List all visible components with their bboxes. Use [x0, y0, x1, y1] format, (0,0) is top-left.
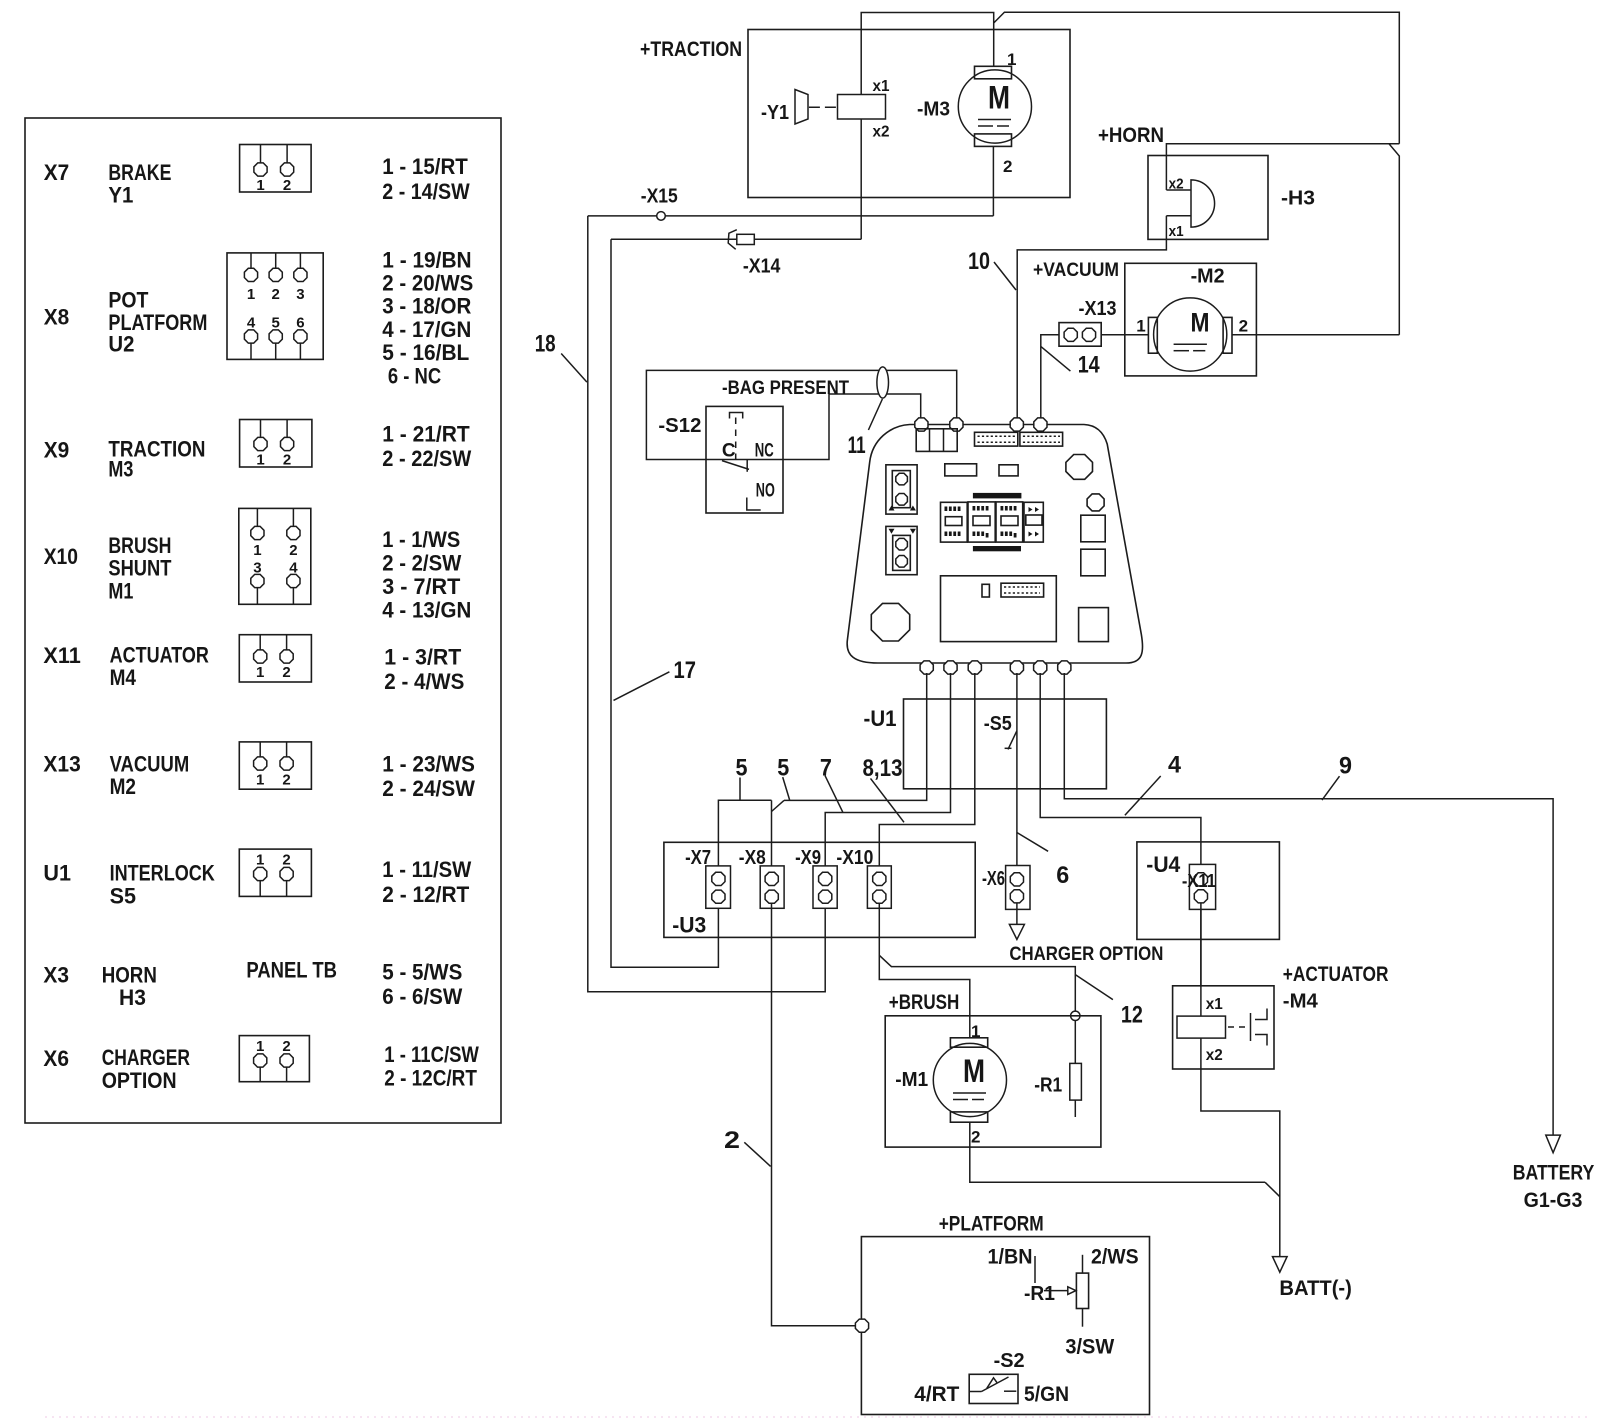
svg-text:X6: X6 — [43, 1046, 69, 1071]
svg-text:4 - 17/GN: 4 - 17/GN — [382, 317, 471, 342]
svg-text:-H3: -H3 — [1281, 188, 1315, 210]
svg-text:2 - 2/SW: 2 - 2/SW — [382, 551, 461, 576]
svg-text:POT: POT — [108, 287, 148, 312]
svg-text:4 - 13/GN: 4 - 13/GN — [382, 598, 471, 623]
svg-text:1: 1 — [256, 772, 264, 789]
svg-text:2: 2 — [724, 1127, 740, 1154]
svg-text:6: 6 — [296, 315, 304, 332]
svg-text:X10: X10 — [44, 544, 78, 569]
svg-text:2: 2 — [282, 1038, 290, 1055]
svg-text:PANEL TB: PANEL TB — [246, 958, 337, 983]
svg-text:1: 1 — [247, 286, 255, 303]
svg-text:1: 1 — [1007, 50, 1016, 69]
svg-text:4: 4 — [247, 315, 256, 332]
svg-text:8,13: 8,13 — [863, 755, 903, 782]
svg-text:1 - 21/RT: 1 - 21/RT — [382, 422, 470, 447]
svg-text:9: 9 — [1339, 753, 1352, 780]
svg-text:NC: NC — [755, 440, 774, 461]
svg-text:2: 2 — [272, 286, 280, 303]
svg-text:2 - 22/SW: 2 - 22/SW — [382, 446, 471, 471]
svg-text:2 - 24/SW: 2 - 24/SW — [382, 776, 475, 801]
svg-text:6 - 6/SW: 6 - 6/SW — [382, 984, 462, 1009]
svg-text:1: 1 — [256, 452, 264, 469]
svg-text:BRAKE: BRAKE — [108, 160, 171, 185]
svg-text:-U3: -U3 — [672, 913, 706, 938]
svg-text:-X14: -X14 — [743, 256, 781, 278]
svg-text:5: 5 — [736, 755, 748, 782]
svg-text:BATT(-): BATT(-) — [1279, 1277, 1352, 1300]
svg-text:x2: x2 — [1206, 1047, 1223, 1064]
svg-text:1 - 11C/SW: 1 - 11C/SW — [384, 1042, 479, 1067]
svg-text:2: 2 — [283, 452, 291, 469]
svg-text:+BRUSH: +BRUSH — [889, 991, 960, 1014]
svg-text:10: 10 — [968, 248, 990, 275]
svg-text:VACUUM: VACUUM — [110, 752, 190, 777]
svg-text:11: 11 — [848, 432, 866, 459]
svg-text:X9: X9 — [44, 437, 69, 462]
svg-text:1: 1 — [971, 1022, 980, 1041]
svg-text:INTERLOCK: INTERLOCK — [110, 861, 215, 886]
svg-text:+VACUUM: +VACUUM — [1033, 260, 1119, 281]
svg-text:-M3: -M3 — [917, 99, 950, 121]
svg-text:2: 2 — [971, 1128, 980, 1147]
svg-text:6: 6 — [1056, 862, 1069, 889]
svg-text:4/RT: 4/RT — [914, 1383, 959, 1406]
svg-text:H3: H3 — [119, 985, 146, 1010]
svg-text:2: 2 — [282, 664, 290, 681]
svg-text:-Y1: -Y1 — [761, 102, 789, 124]
svg-text:C: C — [722, 440, 736, 461]
svg-text:-S12: -S12 — [658, 415, 701, 437]
svg-text:1: 1 — [253, 542, 261, 559]
svg-text:2: 2 — [289, 542, 297, 559]
svg-text:CHARGER OPTION: CHARGER OPTION — [1009, 944, 1163, 965]
svg-text:2: 2 — [282, 772, 290, 789]
svg-text:SHUNT: SHUNT — [108, 556, 171, 581]
svg-text:-X6: -X6 — [982, 868, 1005, 890]
svg-text:-U4: -U4 — [1146, 852, 1181, 877]
svg-text:1: 1 — [256, 1038, 264, 1055]
svg-text:Y1: Y1 — [108, 183, 133, 208]
svg-text:+HORN: +HORN — [1098, 124, 1164, 147]
svg-text:OPTION: OPTION — [102, 1068, 177, 1093]
svg-text:BRUSH: BRUSH — [108, 533, 171, 558]
svg-text:G1-G3: G1-G3 — [1524, 1189, 1583, 1212]
svg-text:3 - 18/OR: 3 - 18/OR — [382, 294, 471, 319]
svg-text:12: 12 — [1121, 1001, 1143, 1028]
svg-text:-X15: -X15 — [641, 185, 678, 207]
svg-text:-R1: -R1 — [1034, 1074, 1062, 1096]
svg-text:BATTERY: BATTERY — [1513, 1161, 1595, 1184]
svg-text:U1: U1 — [43, 861, 71, 886]
svg-text:X7: X7 — [44, 160, 69, 185]
svg-text:U2: U2 — [108, 332, 134, 357]
svg-text:2: 2 — [282, 852, 290, 869]
svg-text:17: 17 — [674, 657, 696, 684]
svg-text:3: 3 — [296, 286, 304, 303]
svg-text:M1: M1 — [108, 578, 133, 603]
svg-text:+PLATFORM: +PLATFORM — [939, 1213, 1044, 1236]
svg-text:x1: x1 — [1206, 996, 1223, 1013]
svg-text:4: 4 — [1168, 752, 1182, 779]
svg-text:+TRACTION: +TRACTION — [640, 38, 742, 61]
svg-text:X11: X11 — [43, 643, 80, 668]
svg-text:-S2: -S2 — [994, 1350, 1025, 1372]
svg-text:-S5: -S5 — [984, 713, 1012, 735]
svg-text:18: 18 — [535, 330, 556, 357]
svg-text:1 - 23/WS: 1 - 23/WS — [382, 752, 475, 777]
svg-text:2 - 20/WS: 2 - 20/WS — [382, 271, 473, 296]
svg-text:3 - 7/RT: 3 - 7/RT — [382, 574, 461, 599]
svg-text:1 - 15/RT: 1 - 15/RT — [382, 154, 468, 179]
svg-text:M: M — [1191, 307, 1210, 337]
svg-text:-X13: -X13 — [1079, 298, 1117, 320]
svg-text:1: 1 — [256, 664, 264, 681]
svg-text:2 - 4/WS: 2 - 4/WS — [384, 669, 464, 694]
svg-text:1 - 3/RT: 1 - 3/RT — [384, 644, 462, 669]
svg-text:6 - NC: 6 - NC — [388, 363, 441, 388]
svg-text:X8: X8 — [44, 304, 69, 329]
svg-text:1: 1 — [256, 177, 264, 194]
svg-text:M4: M4 — [110, 665, 137, 690]
svg-text:3/SW: 3/SW — [1065, 1336, 1114, 1359]
svg-text:NO: NO — [756, 481, 775, 502]
svg-text:CHARGER: CHARGER — [102, 1045, 190, 1070]
svg-text:x2: x2 — [873, 124, 890, 141]
svg-text:5/GN: 5/GN — [1024, 1383, 1069, 1406]
svg-text:x1: x1 — [873, 78, 890, 95]
svg-text:1: 1 — [256, 852, 264, 869]
svg-text:X13: X13 — [43, 752, 80, 777]
svg-text:5: 5 — [272, 315, 280, 332]
svg-text:5 - 16/BL: 5 - 16/BL — [382, 340, 469, 365]
svg-text:M2: M2 — [110, 774, 136, 799]
svg-text:2 - 12/RT: 2 - 12/RT — [382, 882, 470, 907]
svg-text:M3: M3 — [108, 456, 133, 481]
svg-text:1 - 11/SW: 1 - 11/SW — [382, 857, 471, 882]
svg-text:-M4: -M4 — [1283, 990, 1319, 1012]
svg-text:ACTUATOR: ACTUATOR — [110, 642, 209, 667]
svg-text:14: 14 — [1078, 352, 1101, 379]
svg-text:1 - 1/WS: 1 - 1/WS — [382, 527, 460, 552]
svg-text:-X11: -X11 — [1182, 871, 1216, 891]
svg-text:x2: x2 — [1169, 176, 1184, 193]
svg-text:-M1: -M1 — [895, 1069, 928, 1091]
svg-text:-R1: -R1 — [1024, 1283, 1055, 1305]
svg-text:2 - 12C/RT: 2 - 12C/RT — [384, 1066, 477, 1091]
svg-text:S5: S5 — [110, 884, 136, 909]
svg-text:2: 2 — [1239, 316, 1248, 335]
svg-text:HORN: HORN — [102, 962, 157, 987]
svg-text:+ACTUATOR: +ACTUATOR — [1283, 963, 1389, 986]
svg-text:-M2: -M2 — [1191, 266, 1225, 288]
svg-text:-BAG PRESENT: -BAG PRESENT — [722, 378, 849, 399]
svg-text:M: M — [963, 1053, 985, 1089]
svg-text:2 - 14/SW: 2 - 14/SW — [382, 179, 470, 204]
svg-text:2/WS: 2/WS — [1091, 1245, 1139, 1268]
svg-text:1: 1 — [1136, 316, 1145, 335]
svg-text:2: 2 — [1003, 157, 1012, 176]
svg-text:x1: x1 — [1169, 223, 1184, 240]
svg-text:1/BN: 1/BN — [988, 1245, 1033, 1268]
svg-text:M: M — [988, 80, 1010, 116]
svg-text:1 - 19/BN: 1 - 19/BN — [382, 247, 471, 272]
svg-text:2: 2 — [283, 177, 291, 194]
svg-text:5 - 5/WS: 5 - 5/WS — [382, 960, 462, 985]
svg-text:X3: X3 — [43, 962, 69, 987]
svg-text:-U1: -U1 — [864, 706, 897, 731]
